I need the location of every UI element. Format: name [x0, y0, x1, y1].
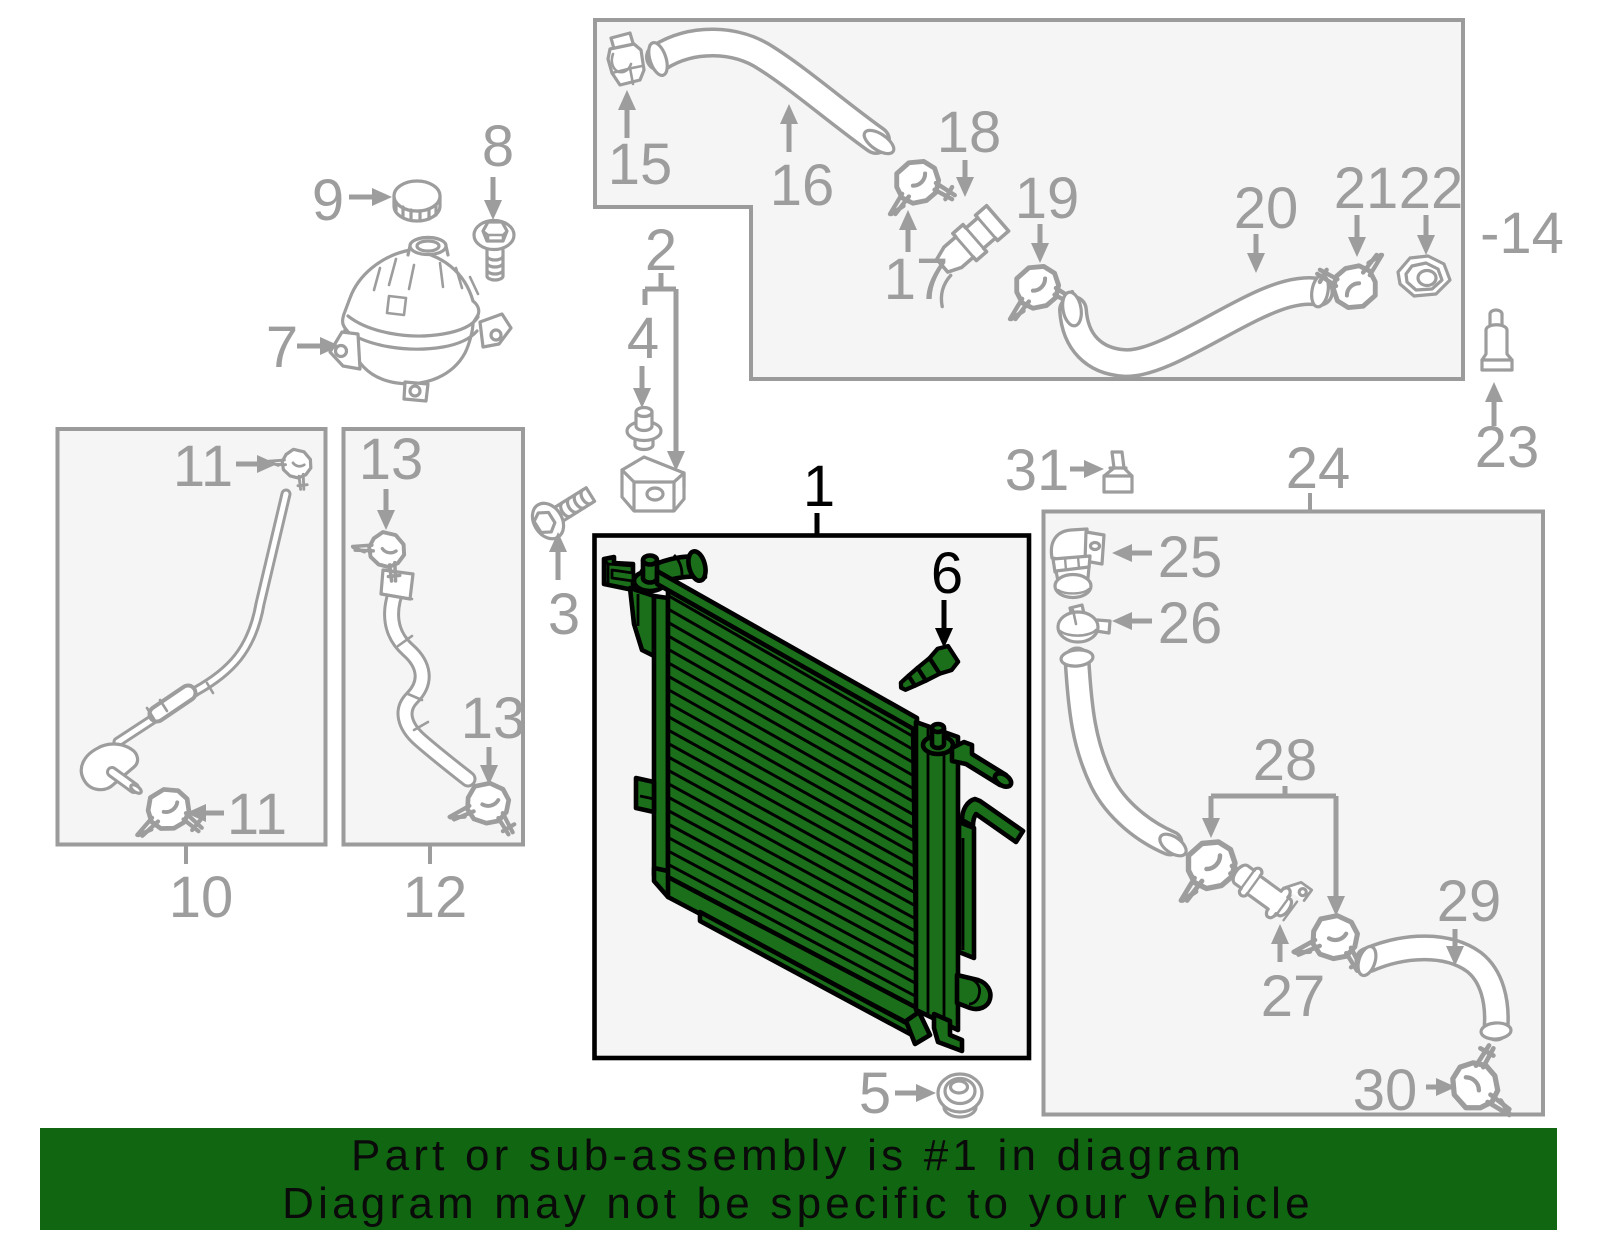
svg-text:13: 13: [359, 427, 424, 492]
svg-text:22: 22: [1399, 156, 1464, 221]
svg-text:4: 4: [627, 306, 659, 371]
svg-text:Diagram may not be specific to: Diagram may not be specific to your vehi…: [282, 1179, 1314, 1228]
svg-text:30: 30: [1353, 1058, 1418, 1123]
svg-text:17: 17: [884, 247, 949, 312]
svg-text:26: 26: [1158, 591, 1223, 656]
svg-text:9: 9: [312, 168, 344, 233]
svg-text:6: 6: [931, 541, 963, 606]
svg-text:11: 11: [227, 782, 287, 847]
svg-text:23: 23: [1475, 415, 1540, 480]
svg-text:28: 28: [1253, 728, 1318, 793]
svg-text:29: 29: [1437, 869, 1502, 934]
svg-text:27: 27: [1261, 964, 1326, 1029]
svg-text:7: 7: [266, 315, 298, 380]
svg-text:25: 25: [1158, 525, 1223, 590]
svg-text:31: 31: [1005, 438, 1070, 503]
svg-text:3: 3: [548, 582, 580, 647]
svg-text:Part or sub-assembly is #1 in: Part or sub-assembly is #1 in diagram: [351, 1131, 1245, 1180]
svg-text:1: 1: [803, 454, 835, 519]
svg-text:-14: -14: [1480, 201, 1564, 266]
svg-text:21: 21: [1334, 156, 1399, 221]
svg-text:18: 18: [937, 100, 1002, 165]
svg-text:24: 24: [1286, 436, 1351, 501]
svg-text:8: 8: [482, 114, 514, 179]
svg-text:12: 12: [403, 865, 468, 930]
svg-text:20: 20: [1234, 176, 1299, 241]
svg-text:13: 13: [461, 686, 526, 751]
svg-text:5: 5: [859, 1061, 891, 1126]
svg-text:10: 10: [169, 865, 234, 930]
svg-text:19: 19: [1015, 166, 1080, 231]
svg-text:15: 15: [608, 132, 673, 197]
svg-text:11: 11: [173, 434, 233, 499]
svg-text:16: 16: [770, 153, 835, 218]
